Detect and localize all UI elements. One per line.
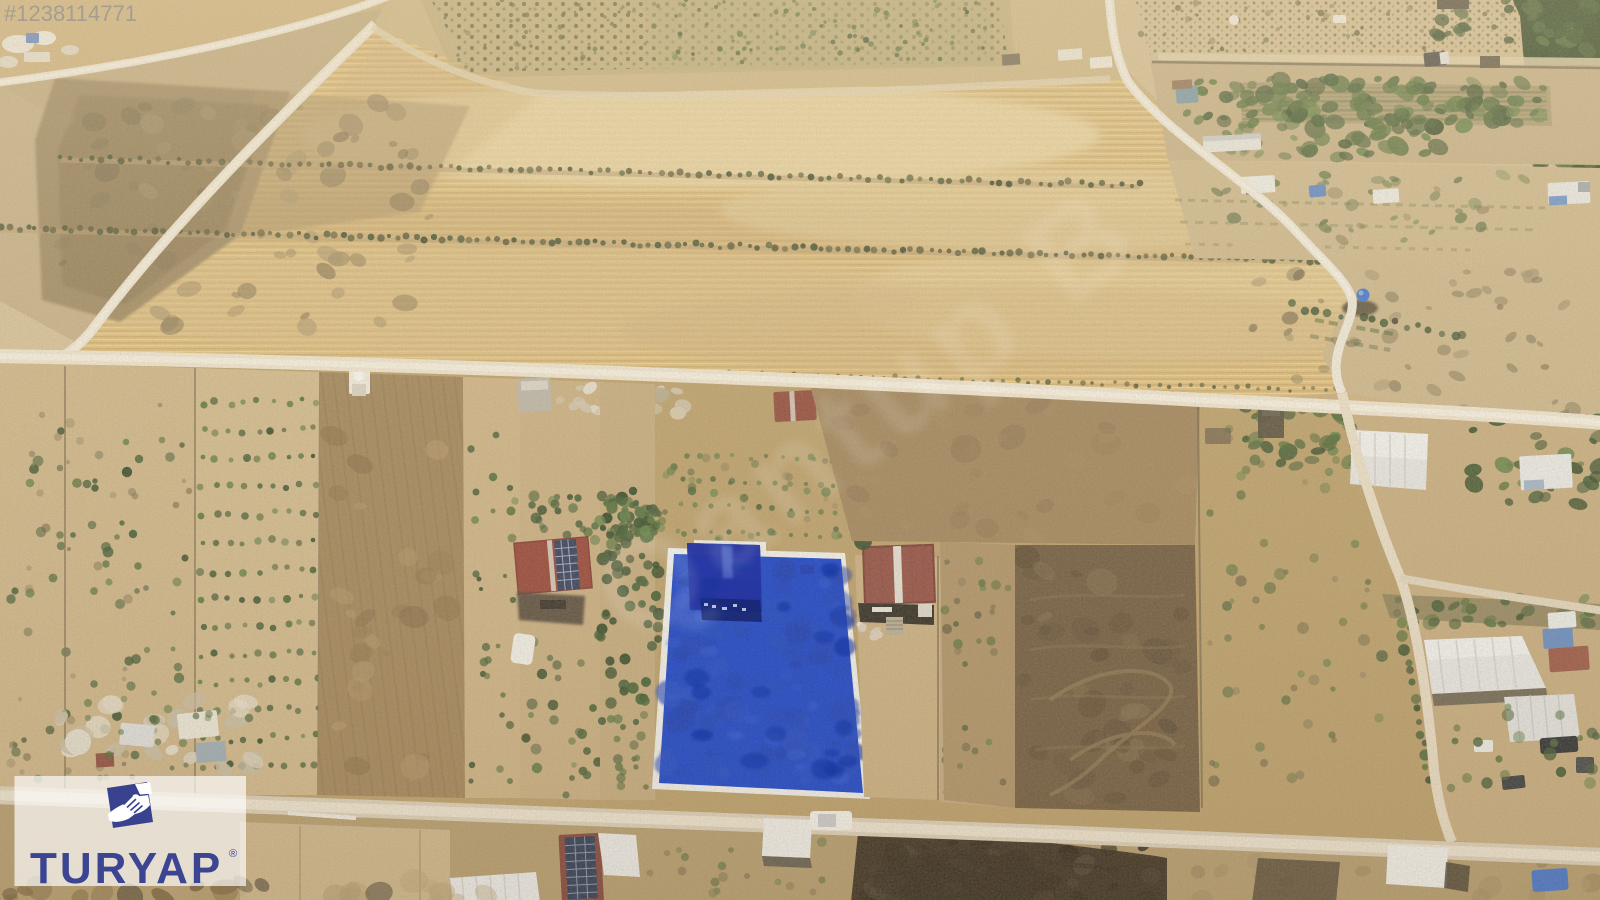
svg-text:®: ® [229,848,237,860]
svg-text:#1238114771: #1238114771 [4,1,137,26]
svg-text:TURYAP: TURYAP [30,844,223,893]
